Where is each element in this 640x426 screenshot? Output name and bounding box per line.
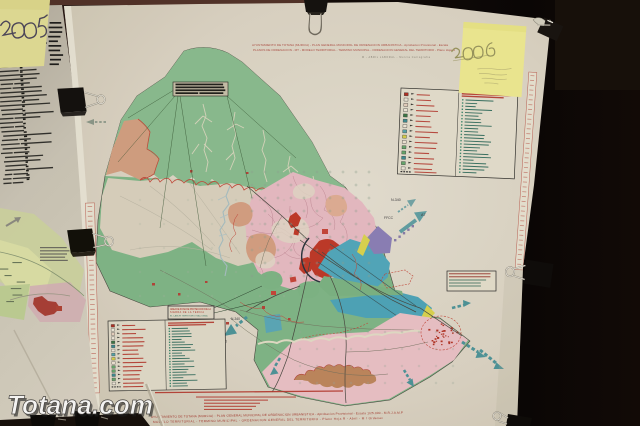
svg-text:Totana.com: Totana.com [7,390,153,420]
